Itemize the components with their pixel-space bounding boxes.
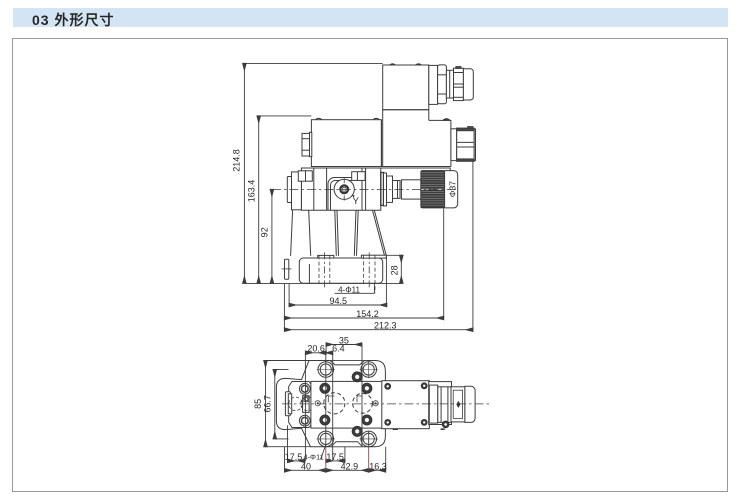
svg-text:Φ37: Φ37	[447, 181, 457, 198]
svg-text:4-Φ11: 4-Φ11	[338, 285, 360, 294]
svg-text:28: 28	[389, 265, 399, 275]
svg-text:17.5: 17.5	[285, 452, 303, 462]
svg-text:154.2: 154.2	[356, 309, 379, 319]
svg-text:20.6: 20.6	[307, 344, 325, 354]
svg-text:94.5: 94.5	[330, 296, 348, 306]
svg-text:4-Φ11: 4-Φ11	[303, 452, 323, 461]
svg-text:92: 92	[260, 227, 270, 237]
svg-text:42.9: 42.9	[341, 461, 359, 471]
svg-text:212.3: 212.3	[374, 321, 397, 331]
svg-text:17.5: 17.5	[326, 452, 344, 462]
svg-text:16.3: 16.3	[369, 461, 387, 471]
svg-text:85: 85	[253, 399, 263, 409]
svg-text:6.4: 6.4	[332, 344, 345, 354]
svg-text:Y: Y	[353, 196, 360, 207]
svg-text:214.8: 214.8	[232, 149, 242, 172]
svg-text:66.7: 66.7	[262, 395, 272, 413]
svg-text:163.4: 163.4	[246, 180, 256, 203]
svg-text:40: 40	[301, 461, 311, 471]
